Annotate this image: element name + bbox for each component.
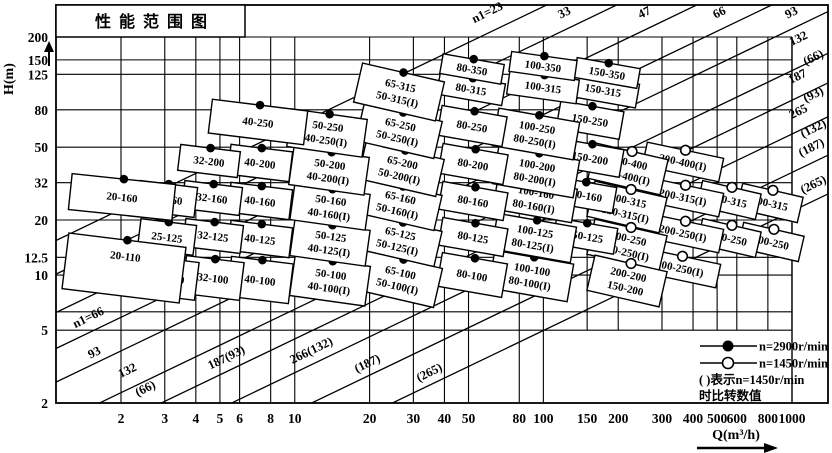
x-tick-label: 200 [608,411,629,426]
x-tick-label: 1000 [778,411,805,426]
x-tick-label: 10 [288,411,302,426]
legend-note-1: ( )表示n=1450r/min [699,372,804,387]
y-tick-label: 10 [35,268,49,283]
x-tick-label: 30 [407,411,421,426]
x-tick-label: 150 [577,411,598,426]
y-tick-label: 200 [28,30,49,45]
y-tick-label: 20 [35,213,49,228]
x-tick-label: 300 [652,411,673,426]
legend-note-2: 时比转数值 [699,388,762,403]
chart-title: 性能范围图 [95,12,215,31]
y-tick-label: 80 [35,103,49,118]
x-tick-label: 40 [438,411,452,426]
x-tick-label: 80 [513,411,527,426]
y-tick-label: 50 [35,140,49,155]
legend-label: n=1450r/min [759,357,828,371]
x-tick-label: 100 [533,411,554,426]
x-tick-label: 500 [707,411,728,426]
performance-range-chart: 性能范围图300-315300-250250-315250-250200-400… [0,0,832,453]
x-axis-ticks: 2345681020304050801001502003004005006008… [118,411,806,426]
x-tick-label: 4 [192,411,199,426]
x-tick-label: 20 [363,411,377,426]
x-tick-label: 5 [217,411,224,426]
x-tick-label: 2 [118,411,125,426]
y-axis-title: H(m) [2,63,17,95]
open-circle-icon [723,358,734,369]
y-tick-label: 12.5 [24,250,48,265]
legend-label: n=2900r/min [759,340,828,354]
performance-range-figure: 性能范围图300-315300-250250-315250-250200-400… [0,0,832,453]
filled-circle-icon [723,341,734,352]
x-tick-label: 800 [758,411,779,426]
x-tick-label: 50 [462,411,476,426]
y-tick-label: 32 [35,176,49,191]
y-tick-label: 2 [41,396,48,411]
x-tick-label: 6 [236,411,243,426]
x-axis-title: Q(m³/h) [712,428,760,443]
y-tick-label: 150 [28,53,49,68]
y-tick-label: 125 [28,67,49,82]
y-tick-label: 5 [41,323,48,338]
x-tick-label: 3 [161,411,168,426]
x-tick-label: 8 [267,411,274,426]
x-tick-label: 600 [727,411,748,426]
x-tick-label: 400 [683,411,704,426]
